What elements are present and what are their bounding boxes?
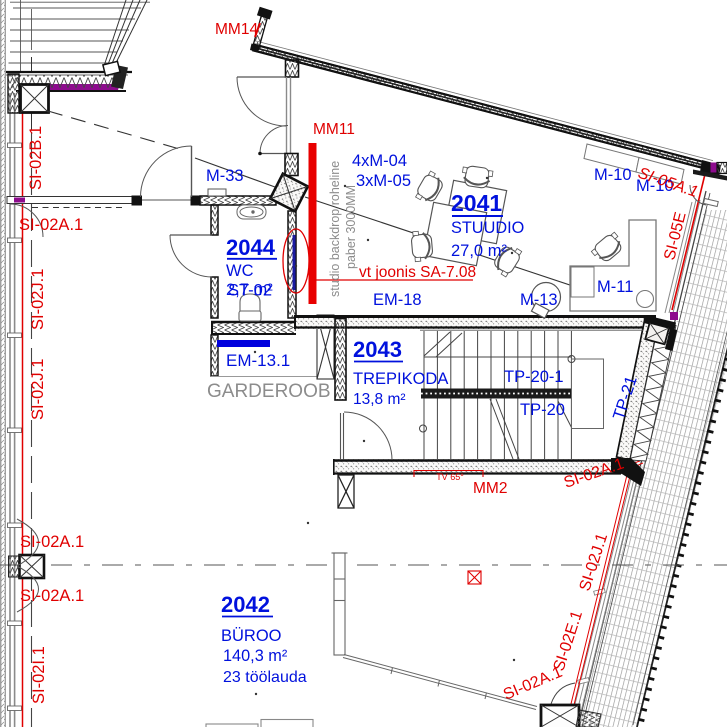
svg-text:MM11: MM11 <box>313 121 355 138</box>
svg-text:paber 3000MM: paber 3000MM <box>344 185 358 269</box>
svg-text:EM-18: EM-18 <box>373 291 422 309</box>
svg-text:140,3 m²: 140,3 m² <box>223 647 288 665</box>
svg-text:3xM-05: 3xM-05 <box>356 172 411 190</box>
svg-text:27,0 m²: 27,0 m² <box>451 242 507 260</box>
svg-text:SI-02J.1: SI-02J.1 <box>29 359 47 420</box>
svg-text:SI-02A.1: SI-02A.1 <box>20 587 84 605</box>
svg-text:vt joonis SA-7.08: vt joonis SA-7.08 <box>359 264 476 281</box>
svg-text:13,8 m²: 13,8 m² <box>353 391 406 408</box>
svg-text:TP-20-1: TP-20-1 <box>504 368 564 386</box>
svg-text:TP-20: TP-20 <box>520 401 565 419</box>
svg-text:studio backdrop roheline: studio backdrop roheline <box>328 161 342 297</box>
svg-text:EM-13.1: EM-13.1 <box>226 351 290 370</box>
svg-text:SI-02B.1: SI-02B.1 <box>27 126 45 190</box>
svg-text:2042: 2042 <box>221 592 270 617</box>
svg-text:TV 65°: TV 65° <box>436 472 464 482</box>
svg-text:SI-02J.1: SI-02J.1 <box>29 269 47 330</box>
svg-text:STUUDIO: STUUDIO <box>451 219 524 237</box>
svg-text:M-33: M-33 <box>206 167 244 185</box>
svg-text:2041: 2041 <box>451 190 502 216</box>
svg-text:M-10: M-10 <box>594 166 632 184</box>
svg-text:M-11: M-11 <box>597 278 633 296</box>
svg-text:2044: 2044 <box>226 235 276 260</box>
svg-text:SI-02I.1: SI-02I.1 <box>30 646 48 704</box>
svg-text:WC: WC <box>226 262 254 280</box>
svg-text:BÜROO: BÜROO <box>221 627 282 645</box>
svg-text:SI-02A.1: SI-02A.1 <box>20 533 84 551</box>
svg-text:23 töölauda: 23 töölauda <box>223 669 307 686</box>
svg-text:TREPIKODA: TREPIKODA <box>353 370 448 388</box>
svg-text:MM14: MM14 <box>215 21 258 38</box>
svg-text:2043: 2043 <box>353 337 402 362</box>
svg-text:4xM-04: 4xM-04 <box>352 152 407 170</box>
svg-text:M-13: M-13 <box>520 291 558 309</box>
svg-text:ST-02: ST-02 <box>228 282 272 300</box>
svg-text:GARDEROOB: GARDEROOB <box>207 381 331 402</box>
svg-text:MM2: MM2 <box>473 480 507 497</box>
svg-text:SI-02A.1: SI-02A.1 <box>19 216 83 234</box>
